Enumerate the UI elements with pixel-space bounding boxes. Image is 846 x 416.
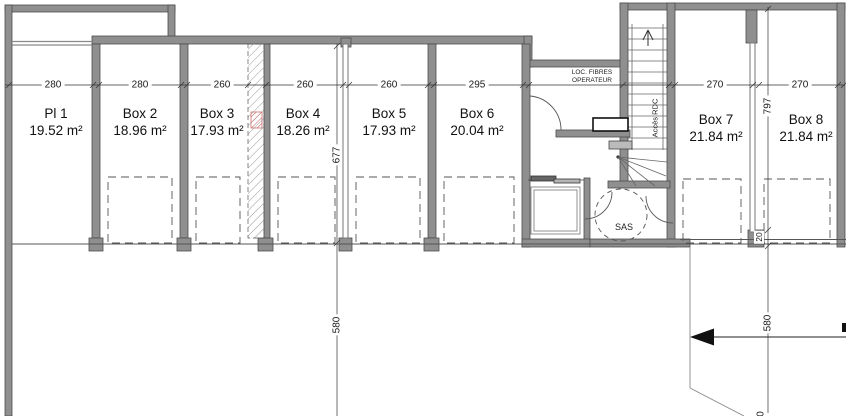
dim-box5-width: 260 (378, 80, 401, 91)
room-name: Box 6 (450, 106, 503, 123)
elevator (528, 176, 584, 234)
room-area: 17.93 m² (190, 123, 243, 140)
dim-depth-580-left: 580 (332, 315, 343, 336)
ramp-edge-lines (690, 247, 744, 416)
room-area: 21.84 m² (689, 129, 742, 146)
room-label-box7: Box 7 21.84 m² (689, 112, 742, 145)
floor-plan-linework (0, 0, 846, 416)
room-label-box4: Box 4 18.26 m² (276, 106, 329, 139)
fibre-room-door-arc (530, 96, 561, 130)
dim-box2-width: 280 (129, 80, 152, 91)
room-area: 20.04 m² (450, 123, 503, 140)
room-area: 18.26 m² (276, 123, 329, 140)
room-label-box8: Box 8 21.84 m² (779, 112, 832, 145)
room-name: Pl 1 (29, 106, 82, 123)
edge-cut-mark (842, 323, 846, 332)
dimension-lines (5, 6, 846, 416)
dim-pl1-width: 280 (42, 80, 65, 91)
dim-box6-width: 295 (466, 80, 489, 91)
walls (5, 3, 845, 416)
dim-depth-797: 797 (763, 96, 774, 117)
room-area: 19.52 m² (29, 123, 82, 140)
dim-cut-off: 0 (756, 409, 767, 416)
room-label-pl1: Pl 1 19.52 m² (29, 106, 82, 139)
room-label-box3: Box 3 17.93 m² (190, 106, 243, 139)
acces-rdc-label: Accès RDC (651, 99, 660, 138)
red-duct-mark (251, 112, 262, 128)
room-label-box5: Box 5 17.93 m² (362, 106, 415, 139)
room-name: Box 3 (190, 106, 243, 123)
dim-depth-677: 677 (332, 145, 343, 166)
room-area: 18.96 m² (113, 123, 166, 140)
room-name: Box 4 (276, 106, 329, 123)
dim-box3-width: 260 (211, 80, 234, 91)
hatch-strip (248, 44, 264, 238)
room-name: Box 7 (689, 112, 742, 129)
dim-box7-width: 270 (704, 80, 727, 91)
floor-plan: Pl 1 19.52 m² Box 2 18.96 m² Box 3 17.93… (0, 0, 846, 416)
room-name: Box 2 (113, 106, 166, 123)
room-name: Box 5 (362, 106, 415, 123)
dim-wall-20: 20 (754, 230, 764, 243)
sas-turning-circle (595, 189, 647, 241)
fibre-cabinet (593, 118, 628, 131)
pl1-top-edge (12, 42, 92, 46)
room-name: Box 8 (779, 112, 832, 129)
room-area: 17.93 m² (362, 123, 415, 140)
dim-depth-580-right: 580 (763, 313, 774, 334)
room-label-box2: Box 2 18.96 m² (113, 106, 166, 139)
garage-door-dashed-zones (108, 177, 830, 243)
stair-up-arrow-icon (643, 30, 653, 46)
dim-box4-width: 260 (294, 80, 317, 91)
room-label-box6: Box 6 20.04 m² (450, 106, 503, 139)
sas-label: SAS (615, 222, 633, 232)
dim-box8-width: 270 (789, 80, 812, 91)
loc-fibres-label: LOC. FIBRES OPERATEUR (572, 69, 612, 85)
room-area: 21.84 m² (779, 129, 832, 146)
